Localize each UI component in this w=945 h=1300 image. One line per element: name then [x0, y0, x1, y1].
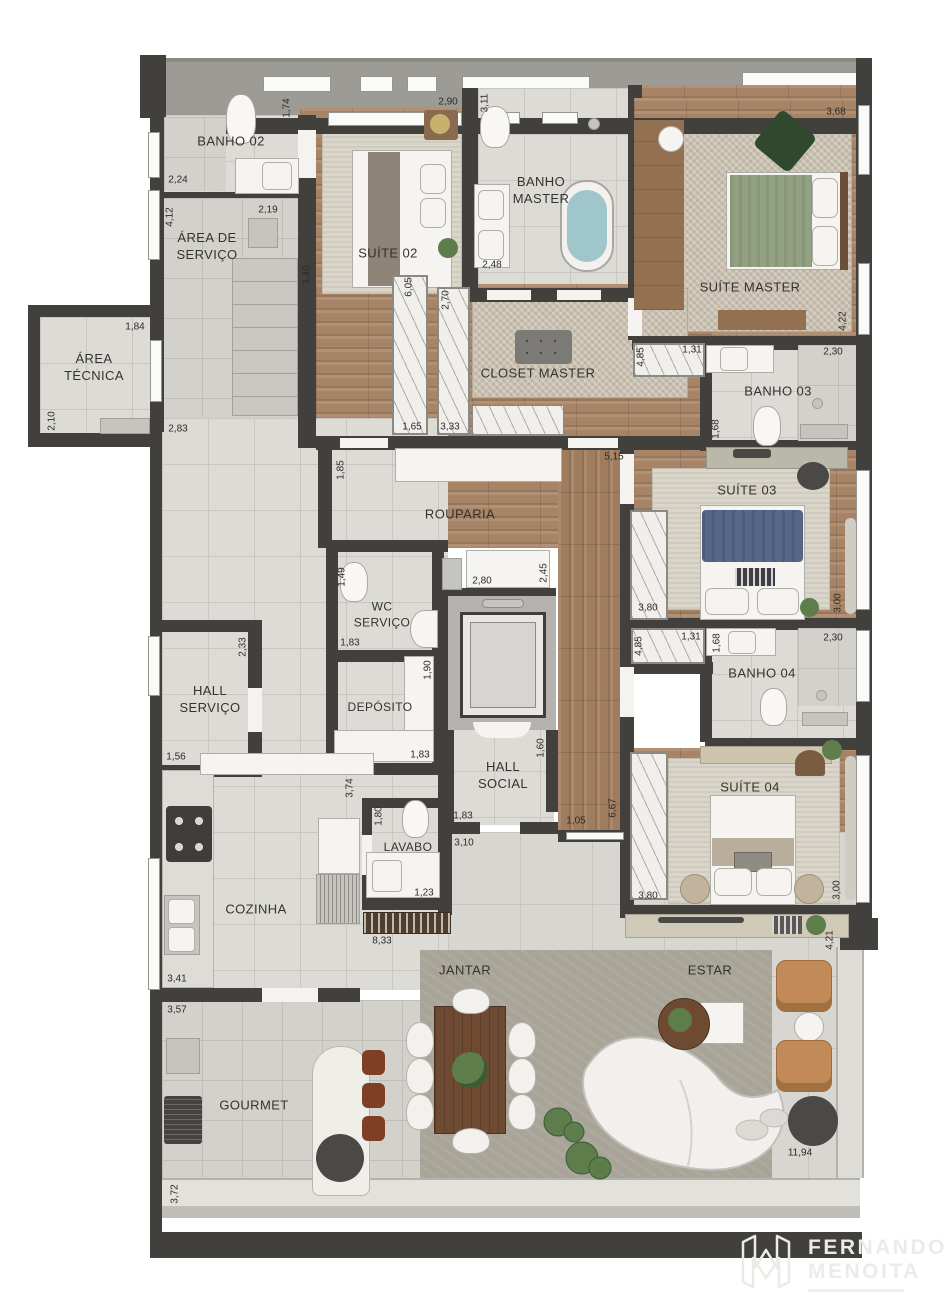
dim: 5,15 — [594, 452, 634, 463]
dim: 6,67 — [608, 788, 619, 828]
room-label-area-tecnica: ÁREA TÉCNICA — [53, 351, 135, 385]
window — [856, 470, 870, 610]
pillow — [420, 198, 446, 228]
bed-blanket-green — [730, 175, 812, 267]
dim: 3,72 — [170, 1174, 181, 1214]
kitchen-island — [318, 818, 360, 874]
room-label-hall-servico: HALL SERVIÇO — [170, 683, 250, 717]
room-label-suite04: SUÍTE 04 — [720, 780, 780, 797]
plant — [800, 598, 819, 617]
bar-stool — [362, 1050, 385, 1075]
room-label-cozinha: COZINHA — [225, 902, 286, 919]
wall — [318, 988, 360, 1002]
dim: 4,22 — [838, 301, 849, 341]
closet-island — [515, 330, 572, 364]
sink — [728, 631, 756, 654]
door-opening — [298, 130, 316, 178]
bench — [802, 712, 848, 726]
dining-chair — [452, 988, 490, 1014]
window — [148, 858, 160, 990]
wall — [150, 418, 162, 1250]
dim: 4,12 — [165, 197, 176, 237]
armchair — [776, 1040, 832, 1092]
dim: 2,30 — [813, 633, 853, 644]
dim: 2,90 — [428, 97, 468, 108]
pouf — [794, 874, 824, 904]
wall — [28, 305, 40, 447]
room-label-estar: ESTAR — [688, 963, 732, 980]
door-opening — [262, 988, 318, 1002]
dim: 3,00 — [832, 870, 843, 910]
balcony-slab-edge — [162, 1206, 860, 1218]
dim: 1,90 — [423, 650, 434, 690]
window — [148, 132, 160, 178]
dim: 11,94 — [780, 1148, 820, 1159]
pillow — [812, 226, 838, 266]
room-label-hall-social: HALL SOCIAL — [467, 759, 539, 793]
drawer-unit — [472, 405, 564, 435]
pillow — [812, 178, 838, 218]
dim: 1,83 — [443, 811, 483, 822]
dim: 2,70 — [441, 280, 452, 320]
side-table — [794, 1012, 824, 1042]
door-opening — [487, 290, 531, 300]
wall — [140, 55, 166, 118]
plant — [438, 238, 458, 258]
room-label-suite03: SUÍTE 03 — [717, 483, 777, 500]
dim: 3,80 — [628, 891, 668, 902]
shelf-niche — [442, 558, 462, 590]
curtain — [845, 756, 856, 900]
plant — [806, 915, 826, 935]
mirror — [658, 126, 684, 152]
wall — [546, 730, 558, 812]
toilet — [760, 688, 787, 726]
elevator-car-inner — [470, 622, 536, 708]
room-label-closet-master: CLOSET MASTER — [468, 366, 608, 383]
dim: 2,45 — [539, 553, 550, 593]
dining-chair — [452, 1128, 490, 1154]
dim: 1,68 — [711, 409, 722, 449]
kitchen-counter — [162, 770, 214, 988]
room-label-banho03: BANHO 03 — [744, 384, 812, 401]
equipment — [100, 418, 150, 434]
wall — [520, 822, 558, 834]
pillow — [705, 588, 749, 615]
dim: 1,68 — [712, 623, 723, 663]
room-label-deposito: DEPÓSITO — [348, 700, 413, 716]
armchair — [776, 960, 832, 1012]
dim: 2,10 — [47, 401, 58, 441]
dim: 1,31 — [671, 632, 711, 643]
rouparia-sideboard — [395, 448, 562, 482]
dim: 3,68 — [816, 107, 856, 118]
plant — [668, 1008, 692, 1032]
dim: 1,05 — [556, 816, 596, 827]
dim: 3,11 — [480, 83, 491, 123]
room-label-suite02: SUÍTE 02 — [358, 246, 418, 263]
dim: 1,65 — [392, 422, 432, 433]
dining-chair — [406, 1094, 434, 1130]
door-opening — [568, 438, 618, 448]
room-label-banho02: BANHO 02 — [197, 134, 265, 151]
dim: 3,33 — [430, 422, 470, 433]
room-label-banho04: BANHO 04 — [728, 666, 796, 683]
dim: 2,83 — [158, 424, 198, 435]
window — [856, 755, 870, 903]
dim: 1,23 — [404, 888, 444, 899]
sink — [168, 927, 195, 952]
dining-chair — [406, 1022, 434, 1058]
dim: 3,41 — [157, 974, 197, 985]
dim: 2,24 — [158, 175, 198, 186]
sink — [372, 860, 402, 892]
dim: 1,85 — [336, 450, 347, 490]
bar-stool — [362, 1083, 385, 1108]
window — [566, 832, 624, 840]
bar-stool — [362, 1116, 385, 1141]
room-label-rouparia: ROUPARIA — [425, 507, 495, 524]
pouf — [680, 874, 710, 904]
dim: 4,85 — [634, 626, 645, 666]
laundry-cabinet — [232, 258, 298, 416]
wall — [326, 540, 448, 552]
bench — [800, 424, 848, 439]
window — [150, 340, 162, 402]
dim: 4,85 — [636, 337, 647, 377]
dim: 1,84 — [115, 322, 155, 333]
window — [858, 105, 870, 175]
shower-head — [588, 118, 600, 130]
room-label-gourmet: GOURMET — [219, 1098, 288, 1115]
floor-plan: BANHO 02 ÁREA DE SERVIÇO ÁREA TÉCNICA SU… — [0, 0, 945, 1300]
sink — [168, 899, 195, 924]
plant — [822, 740, 842, 760]
window — [407, 76, 437, 92]
dim: 2,80 — [462, 576, 502, 587]
bed-throw — [368, 152, 400, 286]
tv — [658, 917, 744, 923]
watermark-text: FERNANDO MENOITA — [808, 1236, 945, 1292]
wardrobe — [630, 752, 668, 900]
door-opening — [620, 667, 634, 717]
dim: 2,48 — [472, 260, 512, 271]
room-label-jantar: JANTAR — [439, 963, 491, 980]
dim: 3,00 — [833, 583, 844, 623]
dining-chair — [406, 1058, 434, 1094]
dim: 3,40 — [302, 255, 313, 295]
dim: 1,56 — [156, 752, 196, 763]
window — [148, 636, 160, 696]
laptop — [733, 449, 771, 458]
toilet — [402, 800, 429, 838]
watermark-line2: MENOITA — [808, 1260, 945, 1284]
sink — [720, 347, 748, 371]
window — [360, 76, 393, 92]
wall — [318, 448, 332, 548]
dim: 3,80 — [628, 603, 668, 614]
floor-corridor — [558, 440, 622, 830]
room-label-wc-servico: WC SERVIÇO — [345, 599, 419, 630]
door-opening — [340, 438, 388, 448]
dim: 3,10 — [444, 838, 484, 849]
stove — [166, 806, 212, 862]
dim: 4,21 — [825, 920, 836, 960]
gourmet-sink — [166, 1038, 200, 1074]
dim: 1,49 — [337, 557, 348, 597]
watermark-logo-icon — [735, 1228, 797, 1290]
pillow — [714, 868, 752, 896]
desk-suite03 — [706, 447, 848, 469]
watermark-rule — [808, 1289, 904, 1292]
shower-head — [816, 690, 827, 701]
dim: 1,74 — [282, 88, 293, 128]
dressing-mirror — [795, 750, 825, 776]
elevator-landing — [473, 722, 531, 738]
wine-rack — [363, 912, 451, 934]
door-opening — [557, 290, 601, 300]
window — [856, 630, 870, 702]
dim: 3,74 — [345, 768, 356, 808]
dim: 2,19 — [248, 205, 288, 216]
window — [263, 76, 331, 92]
dim: 2,33 — [238, 627, 249, 667]
toilet — [753, 406, 781, 446]
books — [772, 916, 802, 934]
window — [542, 112, 578, 124]
room-label-suite-master: SUÍTE MASTER — [685, 280, 815, 297]
lamp — [430, 114, 450, 134]
wall — [28, 305, 154, 317]
bed-bench — [718, 310, 806, 330]
headboard — [840, 172, 848, 270]
pillow — [757, 588, 799, 615]
plant-centerpiece — [452, 1052, 488, 1088]
shower-head — [812, 398, 823, 409]
elevator-handle — [482, 599, 524, 608]
island-appliance — [316, 874, 360, 924]
pillow — [756, 868, 792, 896]
door-opening — [248, 688, 262, 732]
fire-pit — [788, 1096, 838, 1146]
window — [148, 190, 160, 260]
dim: 1,31 — [672, 345, 712, 356]
pillow — [420, 164, 446, 194]
bed-tray — [735, 568, 775, 586]
grill — [164, 1096, 202, 1144]
wall — [362, 898, 440, 910]
room-label-lavabo: LAVABO — [384, 840, 433, 856]
dim: 2,30 — [813, 347, 853, 358]
dim: 1,83 — [400, 750, 440, 761]
desk-chair — [797, 462, 829, 490]
dim: 8,33 — [362, 936, 402, 947]
wall — [155, 988, 262, 1002]
dim: 1,60 — [536, 728, 547, 768]
sink — [478, 230, 504, 260]
bed-blanket-blue — [702, 510, 803, 562]
room-label-banho-master: BANHO MASTER — [499, 174, 583, 208]
sink — [262, 162, 292, 190]
dim: 1,80 — [374, 796, 385, 836]
window — [858, 263, 870, 335]
dim: 1,83 — [330, 638, 370, 649]
bar-table — [316, 1134, 364, 1182]
watermark-line1: FERNANDO — [808, 1236, 945, 1260]
dim: 3,57 — [157, 1005, 197, 1016]
curtain — [845, 518, 856, 614]
dim: 6,05 — [404, 267, 415, 307]
